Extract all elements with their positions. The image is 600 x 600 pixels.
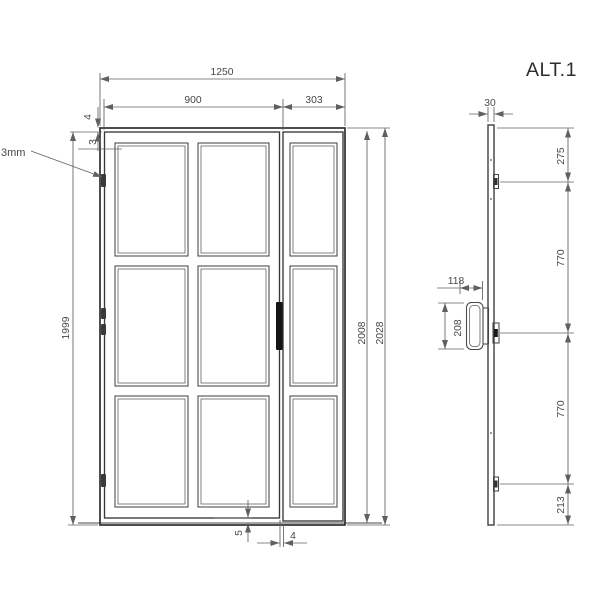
glass-pane: [290, 396, 337, 507]
handle-grip: [467, 303, 484, 350]
side-handle-assembly: [467, 303, 489, 350]
dim-upper-hinge-spacing: 770: [556, 249, 567, 266]
door-handle: [276, 302, 283, 350]
hinge-knuckle: [495, 178, 498, 185]
dim-inner-height: 2008: [357, 321, 368, 344]
drawing-sheet: 1250 900 303 4 3 3mm 1999: [0, 0, 600, 600]
outer-frame: [100, 128, 345, 525]
glazing-bead: [118, 146, 185, 253]
dim-bottom-clearance: 5: [234, 530, 245, 536]
front-elevation: 1250 900 303 4 3 3mm 1999: [1, 67, 390, 547]
glazing-bead: [118, 399, 185, 504]
fixing-dot: [490, 432, 492, 434]
glazing-bead: [201, 146, 266, 253]
glass-pane: [115, 396, 188, 507]
handle-grip-inner: [470, 306, 481, 347]
dim-overall-width: 1250: [211, 67, 234, 78]
sidelight-glazing-grid: [290, 143, 337, 507]
front-dimensions: 1250 900 303 4 3 3mm 1999: [1, 67, 390, 547]
leader-line: [31, 151, 102, 177]
drawing-title: ALT.1: [526, 59, 577, 81]
hinge-middle-lower: [101, 324, 106, 335]
glazing-bead: [118, 269, 185, 383]
dim-profile-depth: 30: [484, 98, 496, 109]
dim-sidelight-width: 303: [305, 95, 322, 106]
glass-pane: [290, 143, 337, 256]
door-glazing-grid: [115, 143, 269, 507]
dim-leaf-gap: 4: [290, 531, 296, 542]
dim-handle-length: 208: [453, 319, 464, 336]
hinge-knuckle: [495, 481, 498, 488]
dim-hinge-to-bottom: 213: [556, 496, 567, 513]
dim-lower-hinge-spacing: 770: [556, 400, 567, 417]
dim-door-width: 900: [184, 95, 201, 106]
side-dimensions: 30 275 770 770 213 118: [437, 98, 574, 525]
door-leaf: [105, 132, 280, 518]
dim-overall-height: 2028: [375, 321, 386, 344]
front-hinges: [101, 174, 106, 487]
hinge-middle-upper: [101, 308, 106, 319]
glazing-bead: [201, 269, 266, 383]
dim-frame-top-gap: 4: [83, 114, 94, 120]
glazing-bead: [201, 399, 266, 504]
glazing-bead: [293, 399, 334, 504]
dim-glazing-offset: 3: [88, 139, 99, 145]
glass-pane: [198, 266, 269, 386]
glass-pane: [198, 143, 269, 256]
fixing-dot: [490, 198, 492, 200]
glazing-bead: [293, 146, 334, 253]
dim-door-height: 1999: [61, 316, 72, 339]
glass-pane: [290, 266, 337, 386]
glazing-bead: [293, 269, 334, 383]
fixing-dot: [490, 159, 492, 161]
dim-top-to-hinge: 275: [556, 147, 567, 164]
hinge-bottom: [101, 474, 106, 487]
glass-pane: [115, 266, 188, 386]
dim-handle-projection: 118: [448, 276, 465, 287]
leader-note: 3mm: [1, 147, 25, 159]
glass-pane: [198, 396, 269, 507]
hinge-top: [101, 174, 106, 187]
glass-pane: [115, 143, 188, 256]
side-profile-view: 30 275 770 770 213 118: [437, 98, 574, 525]
lock-bolt: [494, 329, 498, 337]
technical-drawing: 1250 900 303 4 3 3mm 1999: [0, 0, 600, 600]
